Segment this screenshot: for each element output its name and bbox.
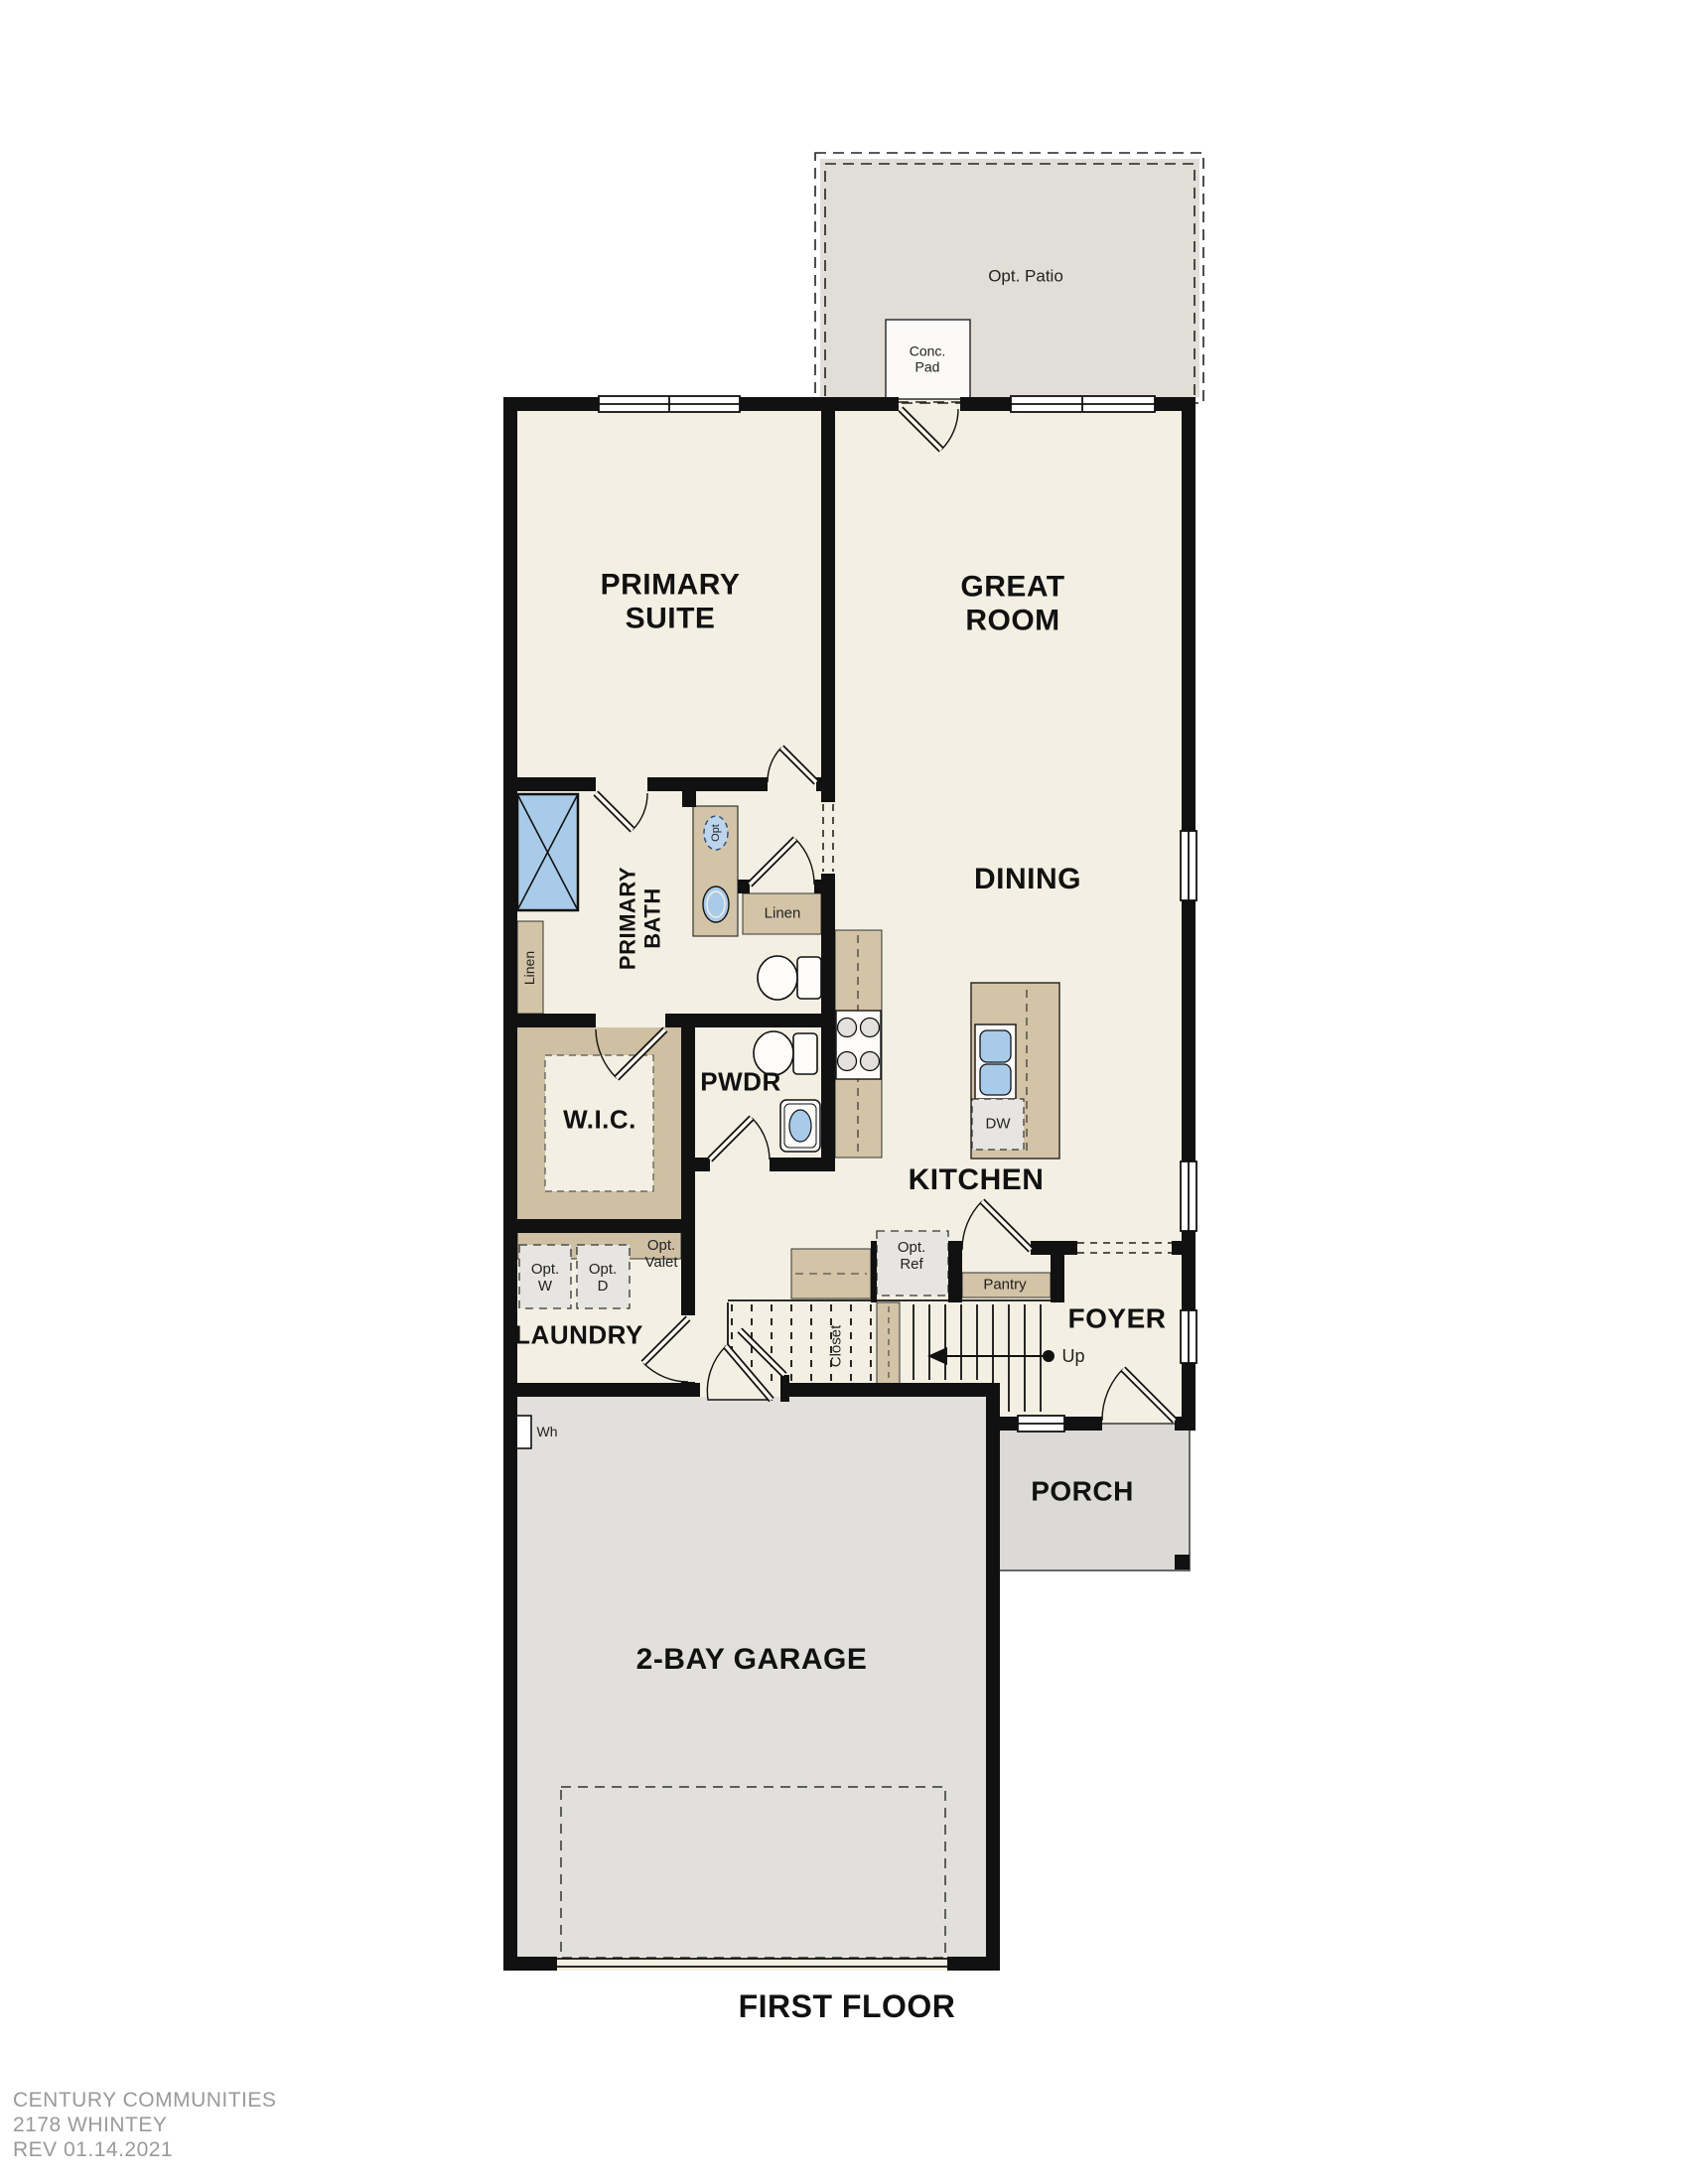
room-label-foyer: FOYER: [1068, 1302, 1167, 1333]
footer-revision: REV 01.14.2021: [13, 2137, 276, 2162]
window-great-room: [1011, 396, 1155, 412]
room-label-wic: W.I.C.: [563, 1105, 636, 1134]
window-dining: [1181, 831, 1196, 900]
room-label-primary-bath: PRIMARY BATH: [616, 867, 664, 970]
label-linen-bath: Linen: [522, 951, 538, 985]
label-water-heater: Wh: [537, 1425, 558, 1440]
label-conc-pad: Conc. Pad: [910, 343, 946, 374]
window-foyer-upper: [1181, 1161, 1196, 1231]
floor-plan-drawing: [0, 0, 1688, 2184]
cooktop: [836, 1011, 881, 1079]
room-label-great-room: GREAT ROOM: [960, 570, 1064, 636]
label-opt-patio: Opt. Patio: [988, 266, 1063, 285]
footer-plan-number: 2178 WHINTEY: [13, 2113, 276, 2137]
label-opt-ref: Opt. Ref: [898, 1240, 925, 1274]
label-closet: Closet: [829, 1325, 846, 1368]
label-dishwasher: DW: [986, 1117, 1011, 1134]
garage-floor: [517, 1397, 986, 1957]
room-label-garage: 2-BAY GARAGE: [636, 1643, 868, 1677]
label-linen-hall: Linen: [765, 906, 801, 923]
room-label-dining: DINING: [974, 863, 1081, 896]
room-label-laundry: LAUNDRY: [514, 1320, 643, 1349]
window-foyer-lower: [1181, 1310, 1196, 1363]
label-opt-valet: Opt. Valet: [644, 1238, 677, 1272]
footer-company: CENTURY COMMUNITIES: [13, 2088, 276, 2113]
room-label-primary-suite: PRIMARY SUITE: [601, 568, 741, 634]
page-title: FIRST FLOOR: [739, 1989, 956, 2025]
window-front: [1018, 1416, 1064, 1432]
porch-pillar: [1175, 1555, 1190, 1570]
room-label-porch: PORCH: [1031, 1475, 1134, 1506]
shower: [517, 794, 578, 910]
floor-plan-page: PRIMARY SUITE GREAT ROOM DINING KITCHEN …: [0, 0, 1688, 2184]
window-primary-suite: [599, 396, 740, 412]
label-pantry: Pantry: [983, 1278, 1026, 1295]
room-label-pwdr: PWDR: [700, 1067, 780, 1096]
bath-toilet: [758, 956, 821, 1000]
label-opt-dryer: Opt. D: [589, 1262, 617, 1296]
label-stairs-up: Up: [1061, 1346, 1084, 1366]
label-opt-washer: Opt. W: [531, 1262, 559, 1296]
powder-sink: [780, 1100, 820, 1152]
label-opt-sink: Opt: [710, 824, 722, 842]
room-label-kitchen: KITCHEN: [909, 1163, 1045, 1197]
island-sink: [975, 1024, 1016, 1099]
drawing-footer: CENTURY COMMUNITIES 2178 WHINTEY REV 01.…: [13, 2088, 276, 2163]
